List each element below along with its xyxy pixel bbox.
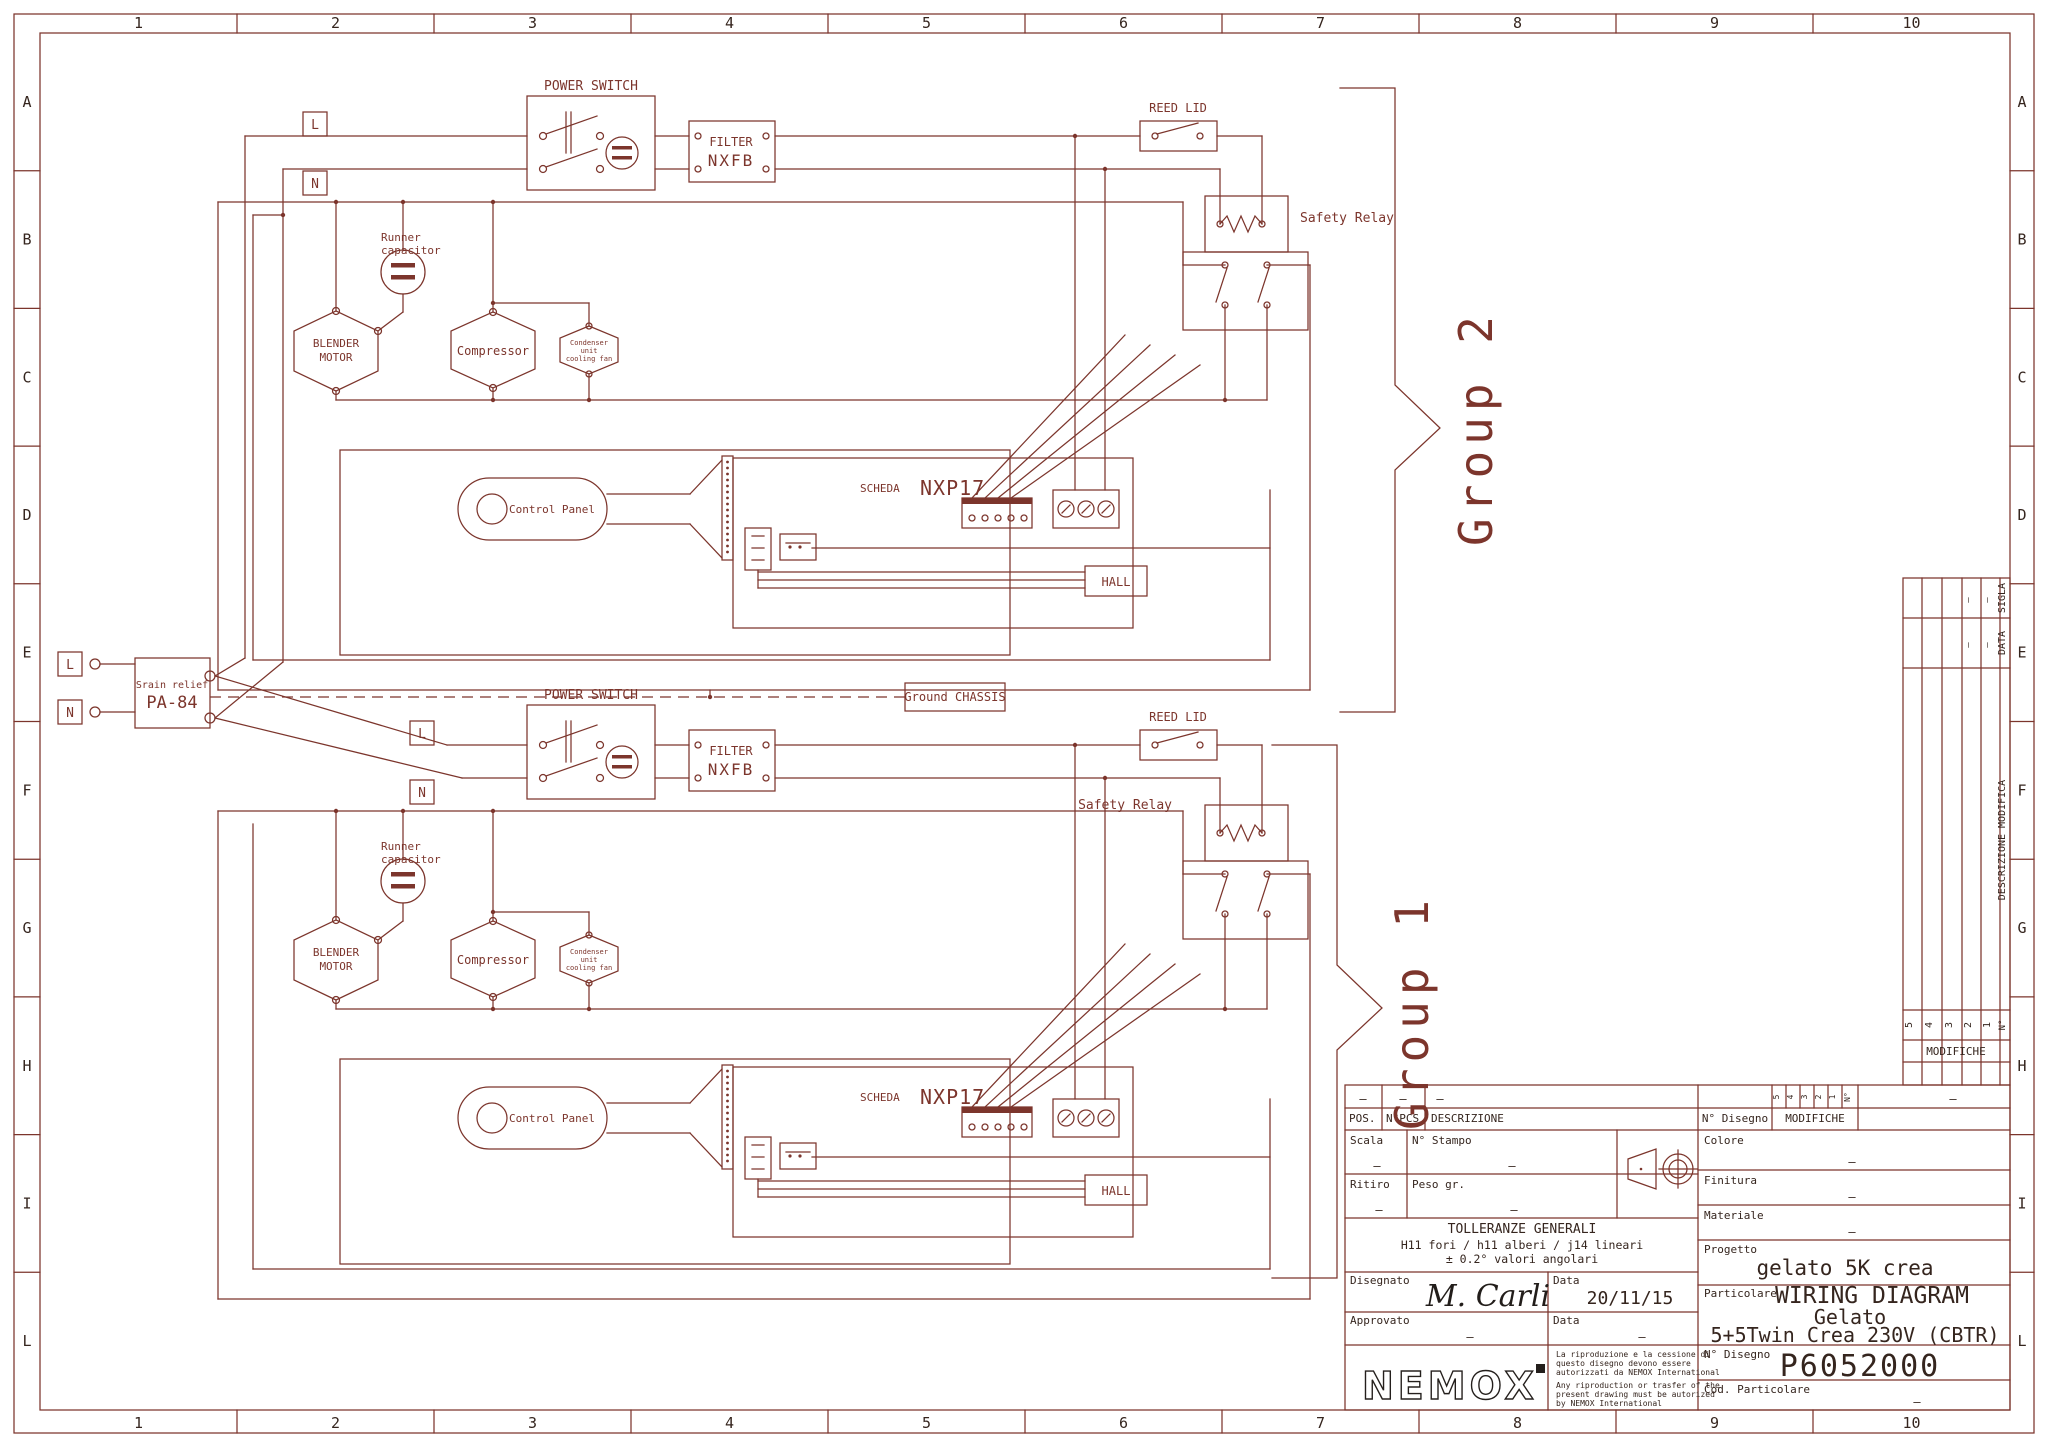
condenser-label: cooling fan [566, 355, 612, 363]
control-panel-knob-icon [477, 1103, 507, 1133]
terminal [982, 515, 988, 521]
junction-dot [491, 398, 495, 402]
blender-motor-label: BLENDER [313, 337, 360, 350]
terminal [763, 166, 769, 172]
junction-dot [726, 509, 729, 512]
border-row-label: D [22, 506, 31, 524]
junction-dot [726, 1106, 729, 1109]
border-column-label: 1 [134, 14, 143, 32]
border-row-label: E [2017, 644, 2026, 662]
reed-lid-label: REED LID [1149, 710, 1207, 724]
terminal [597, 775, 604, 782]
ndisegno-placeholder: — [1949, 1092, 1957, 1106]
junction-dot [726, 1100, 729, 1103]
junction-dot [726, 461, 729, 464]
cod-particolare-value: — [1913, 1395, 1921, 1409]
border-column-label: 5 [922, 1414, 931, 1432]
drawing-sheet: — — — — POS. N°PCS DESCRIZIONE N° Disegn… [0, 0, 2048, 1447]
particolare-label: Particolare [1704, 1287, 1777, 1300]
terminal [969, 1124, 975, 1130]
data-label: Data [1553, 1274, 1580, 1287]
l-label: L [66, 658, 74, 673]
rev-dash: — [1983, 642, 1993, 648]
border-row-label: C [2017, 368, 2026, 386]
border-row-label: A [2017, 93, 2026, 111]
revision-table: SIGLA DATA DESCRIZIONE MODIFICA 5 4 3 2 … [1903, 578, 2010, 1085]
disclaimer-en-3: by NEMOX International [1556, 1399, 1662, 1408]
runner-capacitor-label: capacitor [381, 244, 441, 257]
blender-motor-label: MOTOR [319, 351, 352, 364]
junction-dot [798, 1154, 801, 1157]
rev-dash: — [1964, 597, 1974, 603]
colore-value: — [1848, 1155, 1856, 1169]
tolleranze-2: H11 fori / h11 alberi / j14 lineari [1401, 1238, 1643, 1252]
disclaimer-en-2: present drawing must be autorized [1556, 1390, 1715, 1399]
border-column-label: 2 [331, 14, 340, 32]
terminal [597, 133, 604, 140]
terminal [969, 515, 975, 521]
rev-num-header: N° [1998, 1020, 2008, 1031]
rev-num-1: 1 [1982, 1022, 1993, 1028]
rev-col-5: 5 [1772, 1094, 1781, 1099]
wire [378, 921, 403, 940]
particolare-value-3: 5+5Twin Crea 230V (CBTR) [1711, 1323, 2000, 1347]
relay-coil-icon [1220, 216, 1262, 232]
control-panel-enclosure [340, 1059, 1010, 1264]
terminal [982, 1124, 988, 1130]
scala-label: Scala [1350, 1134, 1383, 1147]
terminal [763, 742, 769, 748]
junction-dot [726, 479, 729, 482]
junction-dot [1223, 398, 1227, 402]
junction-dot [726, 485, 729, 488]
border-column-label: 10 [1902, 1414, 1920, 1432]
junction-dot [726, 1070, 729, 1073]
nemox-logo: NEMOX [1362, 1364, 1538, 1408]
border-column-label: 4 [725, 14, 734, 32]
rev-num-2: 2 [1963, 1022, 1974, 1028]
disclaimer-it-2: questo disegno devono essere [1556, 1359, 1691, 1368]
junction-dot [726, 551, 729, 554]
disegnato-signature: M. Carli [1425, 1279, 1550, 1314]
ndisegno-label: N° Disegno [1704, 1348, 1770, 1361]
terminal [695, 775, 701, 781]
scheda-label: SCHEDA [860, 482, 900, 495]
rev-num-5: 5 [1904, 1022, 1915, 1028]
scala-value: — [1373, 1159, 1381, 1173]
condenser-label: unit [581, 347, 598, 355]
capacitor-plate-icon [612, 146, 632, 150]
junction-dot [726, 497, 729, 500]
l-label: L [418, 727, 426, 742]
terminal [695, 133, 701, 139]
border-row-label: I [22, 1194, 31, 1212]
power-switch-label: POWER SWITCH [544, 688, 638, 703]
connector-key-icon [962, 1107, 1032, 1113]
border-column-label: 6 [1119, 14, 1128, 32]
board-connector [780, 1143, 816, 1169]
terminal [597, 166, 604, 173]
ribbon-connector [722, 456, 733, 560]
border-row-label: G [2017, 919, 2026, 937]
ndisegno-header: N° Disegno [1702, 1112, 1768, 1125]
border-column-label: 7 [1316, 14, 1325, 32]
wire [1258, 268, 1269, 302]
condenser-label: unit [581, 956, 598, 964]
capacitor-plate-icon [612, 156, 632, 160]
runner-capacitor-label: Runner [381, 840, 421, 853]
wire [1062, 505, 1070, 513]
descrizione-header: DESCRIZIONE [1431, 1112, 1504, 1125]
n-label: N [66, 706, 74, 721]
capacitor-plate-icon [391, 872, 415, 877]
terminal [695, 742, 701, 748]
rev-col-3: 3 [1800, 1094, 1809, 1099]
junction-dot [726, 539, 729, 542]
border-column-label: 9 [1710, 14, 1719, 32]
board-connector [780, 534, 816, 560]
modifiche-header: MODIFICHE [1785, 1112, 1845, 1125]
wire [1062, 1114, 1070, 1122]
n-label: N [311, 177, 319, 192]
condenser-label: cooling fan [566, 964, 612, 972]
scheda-model-label: NXP17 [920, 1085, 985, 1109]
control-panel-label: Control Panel [509, 503, 595, 516]
terminal [763, 775, 769, 781]
border-row-label: F [2017, 781, 2026, 799]
runner-capacitor-label: capacitor [381, 853, 441, 866]
terminal [1197, 742, 1203, 748]
blender-motor-label: BLENDER [313, 946, 360, 959]
disegnato-label: Disegnato [1350, 1274, 1410, 1287]
border-row-label: D [2017, 506, 2026, 524]
wire [985, 345, 1150, 498]
border-row-label: F [22, 781, 31, 799]
terminal [1021, 1124, 1027, 1130]
hall-label: HALL [1102, 575, 1131, 589]
terminal [90, 659, 100, 669]
condenser-label: Condenser [570, 948, 608, 956]
pos-placeholder: — [1359, 1092, 1367, 1106]
border-row-label: I [2017, 1194, 2026, 1212]
wire [972, 335, 1125, 498]
disclaimer-it-1: La riproduzione e la cessione di [1556, 1350, 1710, 1359]
wire [690, 1133, 722, 1167]
wire [690, 524, 722, 558]
logo-mark-icon [1536, 1364, 1545, 1373]
border-column-label: 7 [1316, 1414, 1325, 1432]
junction-dot [726, 1124, 729, 1127]
terminal [1197, 133, 1203, 139]
safety-relay-label: Safety Relay [1300, 211, 1394, 226]
control-panel-label: Control Panel [509, 1112, 595, 1125]
border-row-label: A [22, 93, 31, 111]
control-panel-knob-icon [477, 494, 507, 524]
blender-motor-label: MOTOR [319, 960, 352, 973]
nstampo-value: — [1508, 1159, 1516, 1173]
data2-value: — [1638, 1330, 1646, 1344]
junction-dot [726, 491, 729, 494]
terminal [1021, 515, 1027, 521]
wire [1102, 505, 1110, 513]
border-row-label: C [22, 368, 31, 386]
border-column-label: 3 [528, 1414, 537, 1432]
board-connector [745, 528, 771, 570]
group-bracket [1340, 88, 1440, 712]
rev-num-3: 3 [1944, 1022, 1955, 1028]
border-row-label: H [2017, 1057, 2026, 1075]
strain-relief-model-label: PA-84 [146, 693, 197, 713]
peso-value: — [1510, 1203, 1518, 1217]
terminal [1008, 1124, 1014, 1130]
approvato-label: Approvato [1350, 1314, 1410, 1327]
wire [1102, 1114, 1110, 1122]
wire [690, 460, 722, 494]
safety-relay-contact-box [1183, 861, 1308, 939]
junction-dot [726, 1112, 729, 1115]
terminal [695, 166, 701, 172]
power-switch-label: POWER SWITCH [544, 79, 638, 94]
materiale-value: — [1848, 1225, 1856, 1239]
scheda-label: SCHEDA [860, 1091, 900, 1104]
filter-label: FILTER [709, 135, 753, 149]
wire [215, 676, 447, 745]
rev-dash: — [1964, 642, 1974, 648]
cod-particolare-label: Cod. Particolare [1704, 1383, 1810, 1396]
filter-model-label: NXFB [708, 760, 755, 779]
border-column-label: 2 [331, 1414, 340, 1432]
compressor-label: Compressor [457, 344, 529, 358]
border-column-label: 3 [528, 14, 537, 32]
border-column-label: 8 [1513, 14, 1522, 32]
board-connector [745, 1137, 771, 1179]
wire [1157, 732, 1198, 743]
junction-dot [587, 1007, 591, 1011]
group-label: Group 2 [1449, 310, 1503, 546]
junction-dot [491, 1007, 495, 1011]
terminal [995, 1124, 1001, 1130]
capacitor-plate-icon [391, 884, 415, 889]
junction-dot [726, 473, 729, 476]
junction-dot [726, 527, 729, 530]
capacitor-plate-icon [391, 263, 415, 268]
wire [1082, 1114, 1090, 1122]
approvato-value: — [1466, 1330, 1474, 1344]
border-column-label: 6 [1119, 1414, 1128, 1432]
border-column-label: 9 [1710, 1414, 1719, 1432]
revision-table-frame [1903, 578, 2010, 1085]
border-row-label: L [2017, 1332, 2026, 1350]
terminal [995, 515, 1001, 521]
safety-relay-contact-box [1183, 252, 1308, 330]
rev-col-n: N° [1843, 1092, 1852, 1102]
wire [1216, 268, 1227, 302]
border-row-label: H [22, 1057, 31, 1075]
tolleranze-1: TOLLERANZE GENERALI [1448, 1222, 1597, 1237]
junction-dot [726, 1136, 729, 1139]
power-switch-box [527, 705, 655, 799]
disclaimer-en-1: Any riproduction or trasfer of the [1556, 1381, 1720, 1390]
indicator-lamp-icon [606, 137, 638, 169]
l-label: L [311, 118, 319, 133]
junction-dot [726, 1118, 729, 1121]
hall-label: HALL [1102, 1184, 1131, 1198]
capacitor-plate-icon [612, 765, 632, 769]
relay-coil-icon [1220, 825, 1262, 841]
ritiro-label: Ritiro [1350, 1178, 1390, 1191]
junction-dot [726, 467, 729, 470]
rev-dash: — [1983, 597, 1993, 603]
pos-header: POS. [1349, 1112, 1376, 1125]
border-column-label: 10 [1902, 14, 1920, 32]
compressor-label: Compressor [457, 953, 529, 967]
junction-dot [726, 1154, 729, 1157]
strain-relief-label: Srain relief [136, 680, 208, 691]
projection-symbol-icon [1628, 1149, 1697, 1189]
modifiche-footer: MODIFICHE [1926, 1045, 1986, 1058]
wire [1216, 877, 1227, 911]
condenser-label: Condenser [570, 339, 608, 347]
junction-dot [726, 1130, 729, 1133]
capacitor-plate-icon [391, 275, 415, 280]
junction-dot [726, 1076, 729, 1079]
wire [215, 658, 245, 676]
finitura-label: Finitura [1704, 1174, 1757, 1187]
border-column-label: 1 [134, 1414, 143, 1432]
filter-label: FILTER [709, 744, 753, 758]
border-row-label: B [22, 231, 31, 249]
terminal [597, 742, 604, 749]
border-row-label: E [22, 644, 31, 662]
junction-dot [726, 1160, 729, 1163]
progetto-value: gelato 5K crea [1756, 1256, 1933, 1280]
data-value: 20/11/15 [1587, 1288, 1674, 1309]
rev-col-4: 4 [1786, 1094, 1795, 1099]
junction-dot [587, 398, 591, 402]
ritiro-value: — [1375, 1203, 1383, 1217]
wire [985, 954, 1150, 1107]
junction-dot [798, 545, 801, 548]
junction-dot [726, 1094, 729, 1097]
wire [1082, 505, 1090, 513]
rev-col-1: 1 [1828, 1094, 1837, 1099]
border-row-label: G [22, 919, 31, 937]
peso-label: Peso gr. [1412, 1178, 1465, 1191]
power-switch-box [527, 96, 655, 190]
wire [1258, 877, 1269, 911]
tolleranze-3: ± 0.2° valori angolari [1446, 1252, 1598, 1266]
rev-col-2: 2 [1814, 1094, 1823, 1099]
junction-dot [726, 515, 729, 518]
terminal [1008, 515, 1014, 521]
scheda-model-label: NXP17 [920, 476, 985, 500]
rev-num-4: 4 [1924, 1022, 1935, 1028]
junction-dot [726, 521, 729, 524]
control-panel-enclosure [340, 450, 1010, 655]
n-label: N [418, 786, 426, 801]
nstampo-label: N° Stampo [1412, 1134, 1472, 1147]
junction-dot [1223, 1007, 1227, 1011]
terminal [90, 707, 100, 717]
wire [972, 944, 1125, 1107]
connector-key-icon [962, 498, 1032, 504]
junction-dot [726, 545, 729, 548]
junction-dot [726, 503, 729, 506]
progetto-label: Progetto [1704, 1243, 1757, 1256]
materiale-label: Materiale [1704, 1209, 1764, 1222]
reed-lid-label: REED LID [1149, 101, 1207, 115]
colore-label: Colore [1704, 1134, 1744, 1147]
wire [378, 312, 403, 331]
data2-label: Data [1553, 1314, 1580, 1327]
data-header: DATA [1997, 631, 2008, 655]
group-label: Group 1 [1385, 894, 1439, 1130]
junction-dot [726, 1082, 729, 1085]
border-row-label: B [2017, 231, 2026, 249]
wire [1157, 123, 1198, 134]
title-block: — — — — POS. N°PCS DESCRIZIONE N° Disegn… [1345, 1085, 2010, 1410]
ribbon-connector [722, 1065, 733, 1169]
terminal [763, 133, 769, 139]
sigla-header: SIGLA [1997, 583, 2008, 613]
junction-dot [788, 545, 791, 548]
wiring-diagram-svg: — — — — POS. N°PCS DESCRIZIONE N° Disegn… [0, 0, 2048, 1447]
disclaimer-it-3: autorizzati da NEMOX International [1556, 1368, 1720, 1377]
indicator-lamp-icon [606, 746, 638, 778]
junction-dot [788, 1154, 791, 1157]
ground-chassis-label: Ground CHASSIS [904, 690, 1005, 704]
border-column-label: 8 [1513, 1414, 1522, 1432]
finitura-value: — [1848, 1190, 1856, 1204]
filter-model-label: NXFB [708, 151, 755, 170]
capacitor-plate-icon [612, 755, 632, 759]
runner-capacitor-label: Runner [381, 231, 421, 244]
wire [690, 1069, 722, 1103]
border-column-label: 5 [922, 14, 931, 32]
junction-dot [726, 1142, 729, 1145]
border-row-label: L [22, 1332, 31, 1350]
junction-dot [726, 1088, 729, 1091]
ndisegno-value: P6052000 [1780, 1349, 1941, 1384]
descrizione-modifica-header: DESCRIZIONE MODIFICA [1997, 780, 2008, 900]
border-column-label: 4 [725, 1414, 734, 1432]
junction-dot [726, 533, 729, 536]
junction-dot [726, 1148, 729, 1151]
